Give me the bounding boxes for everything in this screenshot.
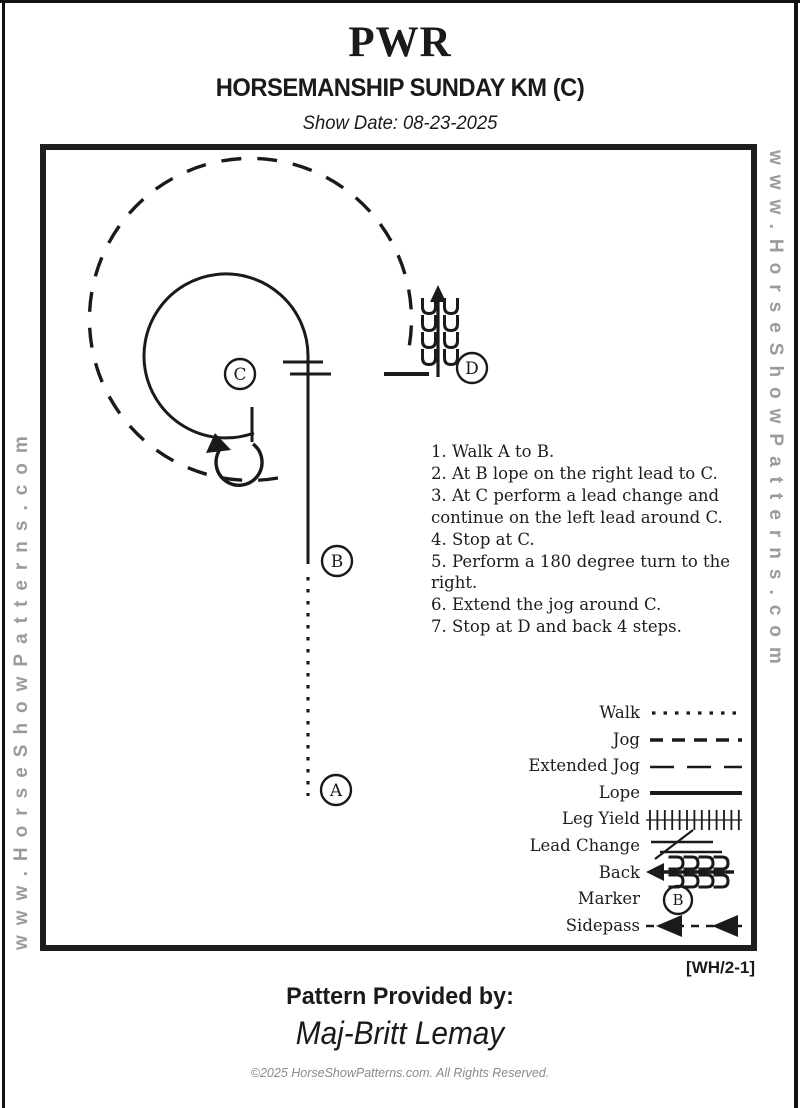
instruction-line: 2. At B lope on the right lead to C. bbox=[431, 463, 730, 485]
instruction-line: 6. Extend the jog around C. bbox=[431, 594, 730, 616]
legend-label-lead-change: Lead Change bbox=[440, 833, 640, 860]
legend-label-back: Back bbox=[440, 860, 640, 887]
legend-back-symbol bbox=[646, 857, 734, 887]
legend-symbols: B bbox=[646, 713, 742, 937]
legend-labels: Walk Jog Extended Jog Lope Leg Yield Lea… bbox=[440, 700, 640, 939]
legend-label-lope: Lope bbox=[440, 780, 640, 807]
legend-lead-change-symbol bbox=[651, 830, 722, 859]
legend-sidepass-symbol bbox=[646, 915, 742, 937]
instruction-line: 5. Perform a 180 degree turn to the bbox=[431, 551, 730, 573]
instruction-line: 1. Walk A to B. bbox=[431, 441, 730, 463]
legend-label-marker: Marker bbox=[440, 886, 640, 913]
legend-label-leg-yield: Leg Yield bbox=[440, 806, 640, 833]
legend-marker-letter: B bbox=[672, 891, 683, 909]
legend-label-sidepass: Sidepass bbox=[440, 913, 640, 940]
instruction-line: continue on the left lead around C. bbox=[431, 507, 730, 529]
extended-jog-circle-path bbox=[89, 158, 411, 480]
lope-path bbox=[144, 274, 308, 564]
marker-b-letter: B bbox=[331, 552, 344, 572]
pattern-sheet-page: { "header": { "title": "PWR", "subtitle"… bbox=[0, 0, 800, 1108]
instructions-list: 1. Walk A to B. 2. At B lope on the righ… bbox=[431, 441, 730, 638]
legend-label-walk: Walk bbox=[440, 700, 640, 727]
instruction-line: 7. Stop at D and back 4 steps. bbox=[431, 616, 730, 638]
marker-d-letter: D bbox=[465, 359, 479, 379]
copyright-notice: ©2025 HorseShowPatterns.com. All Rights … bbox=[0, 1066, 800, 1080]
provider-name: Maj-Britt Lemay bbox=[28, 1015, 772, 1052]
instruction-line: 3. At C perform a lead change and bbox=[431, 485, 730, 507]
marker-c-letter: C bbox=[233, 365, 246, 385]
back-symbol-diagram bbox=[423, 285, 458, 377]
legend-label-extended-jog: Extended Jog bbox=[440, 753, 640, 780]
marker-a-letter: A bbox=[329, 781, 343, 801]
instruction-line: 4. Stop at C. bbox=[431, 529, 730, 551]
legend-marker-symbol: B bbox=[664, 886, 692, 914]
instruction-line: right. bbox=[431, 572, 730, 594]
provided-by-label: Pattern Provided by: bbox=[12, 983, 788, 1011]
legend-leg-yield-symbol bbox=[646, 810, 742, 830]
sheet-code: [WH/2-1] bbox=[455, 958, 755, 978]
legend-label-jog: Jog bbox=[440, 727, 640, 754]
